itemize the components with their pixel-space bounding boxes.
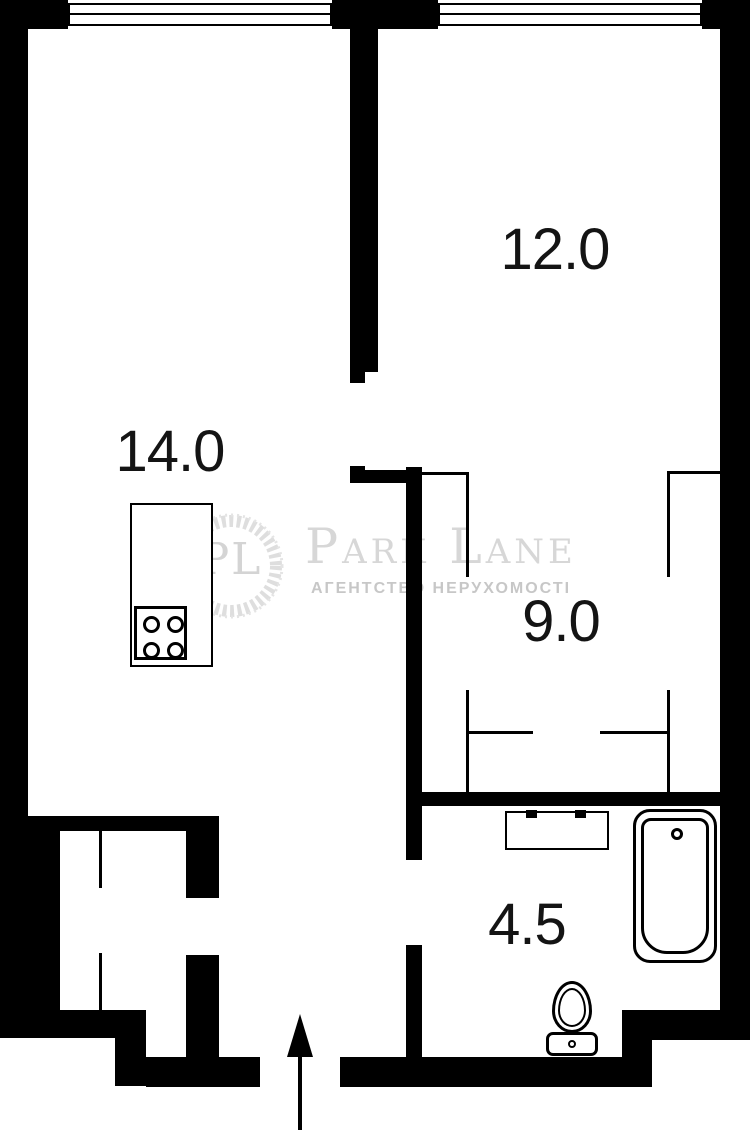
window-right [438,3,702,26]
wall-kitchen-bottom-wall [0,816,219,831]
stove-burner-icon [167,642,184,659]
wall-entry-step-wall [115,1038,146,1086]
toilet-bowl-inner [558,988,586,1027]
window-left [68,3,332,26]
watermark-title: Park Lane [296,518,586,575]
bathtub-drain-icon [671,828,683,840]
wall-left-wall [0,0,28,832]
wall-closet-wall-upper [186,831,219,898]
entrance-arrow [298,1056,302,1130]
toilet-tank-knob [568,1040,576,1048]
partition-bottom-right-v [667,690,670,792]
closet-partition-lower [99,953,102,1010]
stove-burner-icon [143,616,160,633]
room-label-kitchen-living: 14.0 [80,418,260,486]
partition-bottom-right-h [600,731,667,734]
window-glass-line [440,13,700,15]
stove [134,606,187,660]
faucet-icon [526,810,537,818]
wall-closet-floor-wall [0,1010,146,1038]
room-label-bathroom: 4.5 [437,891,617,959]
partition-bottom-left-v [466,690,469,792]
partition-bottom-left-h [466,731,533,734]
window-glass-line [70,13,330,15]
double-sink-counter [505,811,609,850]
partition-top-right-h [667,471,720,474]
stove-burner-icon [167,616,184,633]
partition-top-left-v [466,472,469,577]
wall-bottom-wall-left [146,1057,260,1087]
wall-bathroom-wall [422,792,720,806]
room-label-living-room: 12.0 [465,216,645,284]
wall-left-wall-thick [0,816,60,1011]
wall-bottom-wall-right [340,1057,652,1087]
closet-partition-upper [99,831,102,888]
wall-divider-door-jamb [350,372,365,383]
entrance-arrow-head [287,1014,313,1057]
stove-burner-icon [143,642,160,659]
floor-plan: PL Park Lane АГЕНТСТВО НЕРУХОМОСТІ 14.01… [0,0,750,1130]
wall-corridor-wall-lower [406,945,422,1057]
partition-top-left-h [422,472,468,475]
wall-closet-wall-lower [186,955,219,1058]
faucet-icon [575,810,586,818]
wall-top-wall-mid [332,0,438,29]
wall-corridor-wall-upper [406,467,422,860]
wall-right-wall [720,0,750,1040]
room-label-bedroom: 9.0 [471,588,651,656]
partition-top-right-v [667,471,670,577]
wall-step-wall-horizontal [622,1010,722,1040]
wall-divider-wall [350,28,378,372]
